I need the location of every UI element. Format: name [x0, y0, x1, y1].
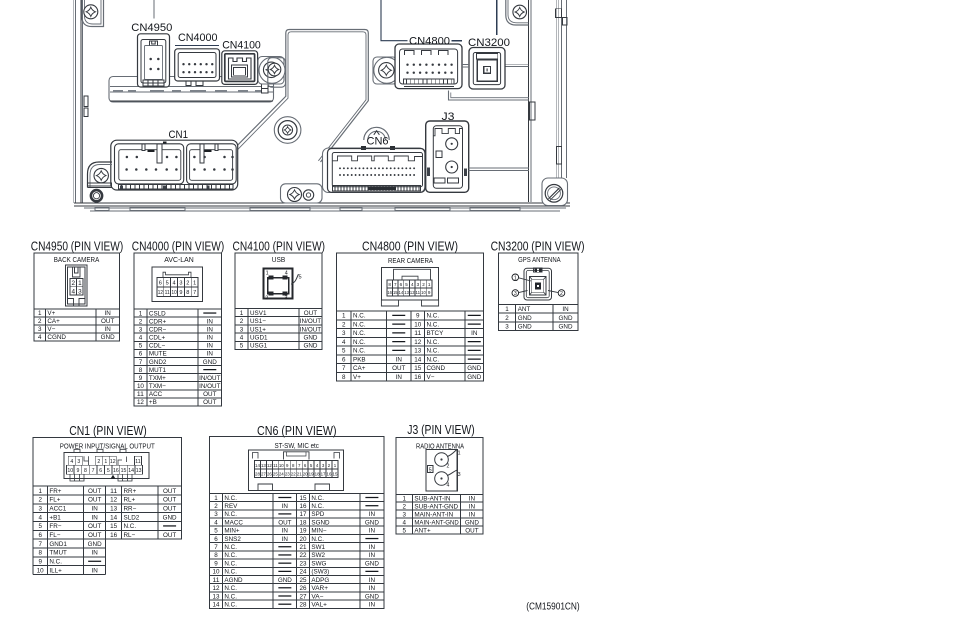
svg-text:N.C.: N.C. — [427, 348, 440, 355]
svg-text:N.C.: N.C. — [224, 593, 237, 600]
svg-text:2: 2 — [403, 503, 407, 510]
svg-text:ANT: ANT — [518, 306, 531, 313]
svg-text:7: 7 — [139, 359, 143, 366]
svg-text:1: 1 — [193, 281, 196, 287]
svg-text:GND: GND — [518, 315, 532, 322]
svg-text:GND: GND — [559, 315, 573, 322]
svg-text:RR−: RR− — [124, 506, 137, 513]
svg-text:10: 10 — [279, 463, 284, 468]
svg-text:2: 2 — [505, 315, 509, 322]
svg-text:15: 15 — [300, 495, 307, 502]
svg-text:SUB-ANT-IN: SUB-ANT-IN — [414, 496, 451, 503]
svg-text:CN4800 (PIN VIEW): CN4800 (PIN VIEW) — [362, 239, 458, 253]
svg-text:11: 11 — [110, 488, 118, 495]
svg-text:1: 1 — [38, 310, 42, 317]
svg-text:1: 1 — [342, 313, 346, 320]
svg-text:SPD: SPD — [311, 511, 324, 518]
svg-text:N.C.: N.C. — [224, 511, 237, 518]
svg-text:7: 7 — [193, 290, 196, 296]
svg-text:15: 15 — [414, 365, 421, 372]
svg-text:IN: IN — [92, 550, 99, 557]
svg-text:IN: IN — [369, 552, 376, 559]
svg-text:8: 8 — [214, 552, 218, 559]
svg-text:SW1: SW1 — [311, 544, 325, 551]
svg-text:2: 2 — [265, 296, 268, 302]
svg-text:6: 6 — [342, 356, 346, 363]
svg-text:1: 1 — [38, 488, 42, 495]
svg-text:IN: IN — [207, 343, 214, 350]
svg-text:IN: IN — [282, 503, 289, 510]
svg-text:FL+: FL+ — [49, 497, 60, 504]
svg-text:CA+: CA+ — [47, 318, 60, 325]
svg-text:27: 27 — [261, 472, 266, 477]
svg-text:3: 3 — [240, 326, 244, 333]
svg-text:US1+: US1+ — [250, 326, 266, 333]
svg-text:1: 1 — [505, 306, 509, 313]
svg-text:27: 27 — [300, 593, 307, 600]
svg-text:MIN−: MIN− — [311, 528, 327, 535]
svg-text:4: 4 — [447, 483, 450, 489]
svg-text:GND: GND — [559, 323, 573, 330]
svg-text:21: 21 — [297, 472, 302, 477]
svg-text:OUT: OUT — [163, 488, 176, 495]
svg-text:10: 10 — [67, 468, 73, 474]
svg-text:RL−: RL− — [124, 532, 136, 539]
svg-text:16: 16 — [414, 374, 421, 381]
svg-text:ADPG: ADPG — [311, 577, 329, 584]
svg-text:VA−: VA− — [311, 593, 323, 600]
svg-text:2: 2 — [97, 459, 100, 465]
svg-text:N.C.: N.C. — [427, 313, 440, 320]
svg-text:5: 5 — [429, 467, 432, 473]
svg-text:ST-SW, MIC etc: ST-SW, MIC etc — [274, 443, 319, 450]
svg-text:3: 3 — [514, 291, 517, 297]
svg-text:15: 15 — [333, 472, 338, 477]
svg-text:1: 1 — [214, 495, 218, 502]
svg-text:VAR+: VAR+ — [311, 585, 328, 592]
svg-text:5: 5 — [240, 343, 244, 350]
svg-text:2: 2 — [447, 464, 450, 470]
svg-text:5: 5 — [107, 468, 110, 474]
svg-text:IN/OUT: IN/OUT — [300, 318, 321, 325]
svg-text:10: 10 — [414, 321, 421, 328]
svg-text:CGND: CGND — [427, 365, 446, 372]
svg-text:10: 10 — [171, 290, 176, 296]
svg-text:7: 7 — [394, 282, 397, 287]
svg-text:IN: IN — [469, 511, 476, 518]
svg-text:1: 1 — [139, 310, 143, 317]
svg-text:GND: GND — [303, 343, 317, 350]
svg-text:9: 9 — [428, 290, 431, 295]
svg-text:1: 1 — [78, 280, 82, 287]
svg-text:+B: +B — [149, 399, 157, 406]
svg-text:10: 10 — [421, 290, 426, 295]
svg-text:3: 3 — [38, 326, 42, 333]
svg-text:GND: GND — [278, 577, 292, 584]
svg-text:9: 9 — [76, 468, 79, 474]
svg-text:14: 14 — [255, 463, 260, 468]
svg-text:11: 11 — [416, 290, 421, 295]
svg-text:13: 13 — [213, 593, 220, 600]
svg-text:13: 13 — [136, 468, 142, 474]
svg-text:CN3200 (PIN VIEW): CN3200 (PIN VIEW) — [491, 239, 585, 253]
svg-text:IN/OUT: IN/OUT — [300, 326, 321, 333]
svg-text:2: 2 — [422, 282, 425, 287]
svg-text:IN: IN — [369, 577, 376, 584]
svg-text:OUT: OUT — [163, 532, 176, 539]
svg-text:OUT: OUT — [88, 497, 101, 504]
svg-text:3: 3 — [403, 511, 407, 518]
svg-text:5: 5 — [299, 275, 302, 281]
svg-text:CN6 (PIN VIEW): CN6 (PIN VIEW) — [257, 424, 337, 438]
svg-text:5: 5 — [139, 343, 143, 350]
svg-text:V+: V+ — [353, 374, 361, 381]
svg-text:1: 1 — [458, 450, 461, 456]
svg-text:13: 13 — [261, 463, 266, 468]
svg-text:J3 (PIN VIEW): J3 (PIN VIEW) — [407, 423, 475, 437]
svg-text:IN: IN — [207, 326, 214, 333]
svg-text:CN4100 (PIN VIEW): CN4100 (PIN VIEW) — [233, 239, 326, 253]
svg-text:+B1: +B1 — [49, 514, 61, 521]
svg-text:3: 3 — [139, 326, 143, 333]
svg-text:IN: IN — [471, 330, 478, 337]
svg-text:ANT+: ANT+ — [414, 527, 431, 534]
svg-text:N.C.: N.C. — [224, 601, 237, 608]
svg-text:SGND: SGND — [311, 519, 330, 526]
svg-text:CGND: CGND — [47, 334, 66, 341]
svg-text:2: 2 — [38, 497, 42, 504]
svg-text:17: 17 — [321, 472, 326, 477]
svg-text:ACC1: ACC1 — [49, 506, 66, 513]
svg-text:18: 18 — [300, 519, 307, 526]
svg-text:16: 16 — [300, 503, 307, 510]
svg-text:3: 3 — [285, 296, 288, 302]
svg-text:5: 5 — [342, 348, 346, 355]
svg-text:4: 4 — [38, 334, 42, 341]
svg-text:FL−: FL− — [49, 532, 60, 539]
svg-text:4: 4 — [173, 281, 176, 287]
svg-text:11: 11 — [165, 290, 170, 296]
svg-text:10: 10 — [213, 569, 220, 576]
svg-text:(CM15901CN): (CM15901CN) — [526, 602, 580, 613]
svg-text:2: 2 — [342, 321, 346, 328]
svg-text:N.C.: N.C. — [124, 523, 137, 530]
svg-text:BACK CAMERA: BACK CAMERA — [54, 257, 100, 264]
svg-text:IN: IN — [469, 503, 476, 510]
svg-text:6: 6 — [214, 536, 218, 543]
svg-text:4: 4 — [139, 335, 143, 342]
svg-text:IN: IN — [105, 310, 112, 317]
svg-text:CN1 (PIN VIEW): CN1 (PIN VIEW) — [69, 424, 147, 438]
svg-text:GND: GND — [365, 593, 379, 600]
svg-text:N.C.: N.C. — [427, 356, 440, 363]
svg-text:8: 8 — [84, 468, 87, 474]
svg-text:9: 9 — [179, 290, 182, 296]
svg-text:7: 7 — [92, 468, 95, 474]
svg-text:8: 8 — [388, 282, 391, 287]
svg-text:GND: GND — [467, 374, 481, 381]
svg-text:OUT: OUT — [163, 497, 176, 504]
svg-text:IN: IN — [207, 351, 214, 358]
svg-text:CN4000 (PIN VIEW): CN4000 (PIN VIEW) — [132, 239, 225, 253]
svg-text:N.C.: N.C. — [353, 321, 366, 328]
svg-text:1: 1 — [428, 282, 431, 287]
svg-text:IN: IN — [282, 536, 289, 543]
svg-text:CN4950 (PIN VIEW): CN4950 (PIN VIEW) — [31, 239, 124, 253]
svg-text:IN: IN — [396, 374, 403, 381]
svg-text:IN: IN — [92, 514, 99, 521]
svg-text:CDL+: CDL+ — [149, 335, 166, 342]
svg-text:15: 15 — [110, 523, 117, 530]
svg-text:CN6: CN6 — [367, 136, 389, 148]
svg-text:12: 12 — [213, 585, 220, 592]
svg-text:V−: V− — [47, 326, 55, 333]
svg-text:GND: GND — [203, 359, 217, 366]
svg-text:GND: GND — [365, 519, 379, 526]
svg-text:N.C.: N.C. — [224, 552, 237, 559]
svg-text:OUT: OUT — [203, 391, 216, 398]
svg-text:CN4100: CN4100 — [222, 39, 261, 51]
svg-text:3: 3 — [505, 323, 509, 330]
svg-text:N.C.: N.C. — [427, 339, 440, 346]
svg-text:4: 4 — [38, 514, 42, 521]
svg-text:IN: IN — [282, 528, 289, 535]
svg-text:CN3200: CN3200 — [468, 37, 510, 49]
svg-text:N.C.: N.C. — [311, 503, 324, 510]
svg-text:MAIN-ANT-IN: MAIN-ANT-IN — [414, 511, 453, 518]
svg-text:1: 1 — [240, 310, 244, 317]
svg-text:CN4950: CN4950 — [131, 22, 172, 34]
svg-text:15: 15 — [121, 468, 127, 474]
svg-text:SW2: SW2 — [311, 552, 325, 559]
svg-text:IN: IN — [207, 335, 214, 342]
svg-text:SNS2: SNS2 — [224, 536, 241, 543]
svg-text:4: 4 — [342, 339, 346, 346]
svg-text:ILL+: ILL+ — [49, 567, 62, 574]
svg-text:SLD2: SLD2 — [124, 514, 140, 521]
svg-text:7: 7 — [214, 544, 218, 551]
svg-text:OUT: OUT — [88, 488, 101, 495]
svg-text:RL+: RL+ — [124, 497, 136, 504]
svg-text:9: 9 — [38, 559, 42, 566]
svg-text:IN: IN — [369, 544, 376, 551]
svg-text:UGD1: UGD1 — [250, 334, 268, 341]
svg-text:IN: IN — [562, 306, 569, 313]
svg-text:13: 13 — [414, 348, 421, 355]
svg-text:3: 3 — [214, 511, 218, 518]
svg-text:IN: IN — [469, 496, 476, 503]
svg-text:TXM−: TXM− — [149, 383, 166, 390]
svg-text:FR−: FR− — [49, 523, 61, 530]
svg-text:CN4800: CN4800 — [409, 35, 450, 47]
svg-text:US1−: US1− — [250, 318, 266, 325]
svg-text:FR+: FR+ — [49, 488, 61, 495]
svg-text:8: 8 — [342, 374, 346, 381]
svg-text:18: 18 — [315, 472, 320, 477]
svg-text:16: 16 — [113, 468, 119, 474]
svg-text:GND: GND — [465, 519, 479, 526]
svg-text:10: 10 — [137, 383, 144, 390]
svg-text:REAR CAMERA: REAR CAMERA — [388, 258, 433, 265]
svg-text:12: 12 — [137, 399, 144, 406]
svg-text:CDL−: CDL− — [149, 343, 166, 350]
svg-text:9: 9 — [139, 375, 143, 382]
svg-text:IN: IN — [369, 601, 376, 608]
svg-text:21: 21 — [300, 544, 307, 551]
svg-text:19: 19 — [309, 472, 314, 477]
svg-text:3: 3 — [458, 472, 461, 478]
svg-text:CDR−: CDR− — [149, 326, 167, 333]
svg-text:USV1: USV1 — [250, 310, 267, 317]
svg-text:GND2: GND2 — [149, 359, 167, 366]
svg-text:USB: USB — [272, 257, 286, 264]
svg-text:IN/OUT: IN/OUT — [199, 383, 220, 390]
svg-text:N.C.: N.C. — [353, 330, 366, 337]
svg-text:IN: IN — [396, 356, 403, 363]
svg-text:14: 14 — [414, 356, 421, 363]
svg-text:BTCY: BTCY — [427, 330, 445, 337]
svg-text:6: 6 — [99, 468, 102, 474]
svg-text:V+: V+ — [47, 310, 55, 317]
svg-text:11: 11 — [414, 330, 422, 337]
svg-text:N.C.: N.C. — [353, 313, 366, 320]
svg-text:3: 3 — [179, 281, 182, 287]
svg-text:12: 12 — [414, 339, 421, 346]
svg-text:23: 23 — [300, 560, 307, 567]
svg-text:11: 11 — [213, 577, 221, 584]
svg-text:6: 6 — [400, 282, 403, 287]
svg-text:CN4000: CN4000 — [178, 32, 218, 44]
svg-text:2: 2 — [72, 280, 76, 287]
svg-text:CSLD: CSLD — [149, 310, 166, 317]
svg-text:4: 4 — [411, 282, 414, 287]
svg-text:20: 20 — [300, 536, 307, 543]
svg-text:3: 3 — [77, 459, 80, 465]
svg-text:24: 24 — [300, 569, 307, 576]
svg-text:1: 1 — [104, 459, 107, 465]
svg-text:1: 1 — [514, 276, 517, 282]
svg-text:8: 8 — [38, 550, 42, 557]
svg-text:REV: REV — [224, 503, 238, 510]
svg-text:N.C.: N.C. — [353, 348, 366, 355]
svg-text:MAIN-ANT-GND: MAIN-ANT-GND — [414, 519, 459, 526]
svg-text:N.C.: N.C. — [224, 544, 237, 551]
svg-text:GND1: GND1 — [49, 541, 67, 548]
svg-text:N.C.: N.C. — [353, 339, 366, 346]
svg-text:7: 7 — [38, 541, 42, 548]
svg-text:6: 6 — [159, 281, 162, 287]
svg-text:12: 12 — [110, 497, 117, 504]
svg-text:13: 13 — [110, 506, 117, 513]
svg-text:5: 5 — [403, 527, 407, 534]
svg-text:4: 4 — [240, 334, 244, 341]
svg-text:ACC: ACC — [149, 391, 163, 398]
svg-text:22: 22 — [291, 472, 296, 477]
svg-text:2: 2 — [139, 318, 143, 325]
svg-text:TMUT: TMUT — [49, 550, 67, 557]
svg-text:12: 12 — [267, 463, 272, 468]
svg-text:17: 17 — [300, 511, 307, 518]
svg-text:N.C.: N.C. — [224, 569, 237, 576]
svg-text:N.C.: N.C. — [49, 559, 62, 566]
svg-text:28: 28 — [255, 472, 260, 477]
svg-text:N.C.: N.C. — [224, 560, 237, 567]
svg-text:MIN+: MIN+ — [224, 528, 240, 535]
svg-text:25: 25 — [273, 472, 278, 477]
svg-text:4: 4 — [70, 459, 73, 465]
svg-text:(SW3): (SW3) — [311, 569, 329, 576]
svg-text:2: 2 — [38, 318, 42, 325]
svg-text:7: 7 — [342, 365, 346, 372]
svg-text:GND: GND — [101, 334, 115, 341]
svg-text:4: 4 — [403, 519, 407, 526]
svg-text:19: 19 — [300, 528, 307, 535]
svg-text:1: 1 — [266, 271, 269, 277]
svg-text:2: 2 — [560, 291, 563, 297]
svg-text:GND: GND — [163, 514, 177, 521]
svg-text:GND: GND — [365, 560, 379, 567]
svg-text:5: 5 — [405, 282, 408, 287]
svg-text:3: 3 — [78, 288, 82, 295]
svg-text:V−: V− — [427, 374, 435, 381]
svg-text:N.C.: N.C. — [311, 495, 324, 502]
svg-text:6: 6 — [38, 532, 42, 539]
svg-text:IN/OUT: IN/OUT — [199, 375, 220, 382]
svg-text:IN: IN — [369, 511, 376, 518]
svg-text:14: 14 — [110, 514, 117, 521]
svg-text:4: 4 — [214, 519, 218, 526]
svg-text:MUTE: MUTE — [149, 351, 167, 358]
svg-text:11: 11 — [135, 459, 140, 465]
svg-text:IN: IN — [369, 528, 376, 535]
svg-text:OUT: OUT — [88, 532, 101, 539]
svg-text:8: 8 — [186, 290, 189, 296]
svg-text:IN: IN — [92, 567, 99, 574]
svg-text:22: 22 — [300, 552, 307, 559]
svg-text:GND: GND — [467, 365, 481, 372]
svg-text:26: 26 — [300, 585, 307, 592]
svg-text:28: 28 — [300, 601, 307, 608]
svg-text:GPS ANTENNA: GPS ANTENNA — [518, 257, 561, 264]
svg-text:6: 6 — [139, 351, 143, 358]
svg-text:MACC: MACC — [224, 519, 243, 526]
svg-text:VAL+: VAL+ — [311, 601, 327, 608]
svg-text:TXM+: TXM+ — [149, 375, 166, 382]
svg-text:CDR+: CDR+ — [149, 318, 167, 325]
svg-text:3: 3 — [417, 282, 420, 287]
svg-text:OUT: OUT — [465, 527, 478, 534]
svg-text:PKB: PKB — [353, 356, 366, 363]
svg-text:OUT: OUT — [163, 506, 176, 513]
svg-text:25: 25 — [300, 577, 307, 584]
svg-text:5: 5 — [38, 523, 42, 530]
svg-text:N.C.: N.C. — [224, 495, 237, 502]
svg-text:OUT: OUT — [304, 310, 317, 317]
svg-text:OUT: OUT — [88, 523, 101, 530]
svg-text:CA+: CA+ — [353, 365, 366, 372]
svg-text:23: 23 — [285, 472, 290, 477]
svg-text:5: 5 — [214, 528, 218, 535]
svg-text:CN1: CN1 — [169, 129, 189, 141]
svg-text:1: 1 — [403, 496, 407, 503]
svg-text:SUB-ANT-GND: SUB-ANT-GND — [414, 503, 458, 510]
svg-text:SWG: SWG — [311, 560, 326, 567]
svg-text:N.C.: N.C. — [311, 536, 324, 543]
svg-text:2: 2 — [214, 503, 218, 510]
svg-text:9: 9 — [214, 560, 218, 567]
svg-text:GND: GND — [303, 334, 317, 341]
svg-text:4: 4 — [72, 288, 76, 295]
